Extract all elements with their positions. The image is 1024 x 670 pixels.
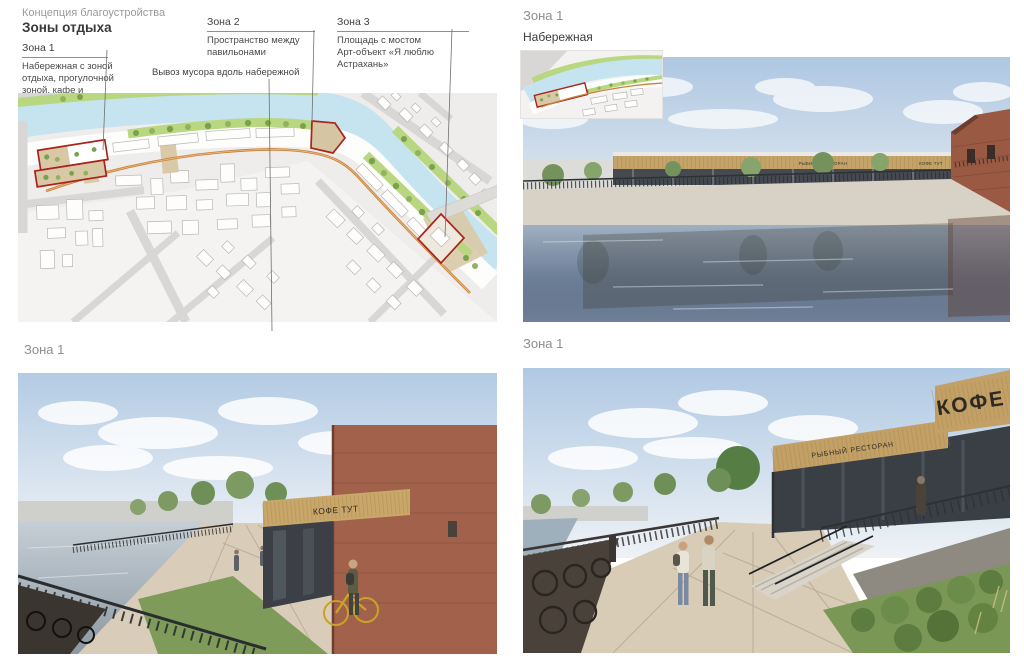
zone2-label: Зона 2 — [207, 16, 315, 32]
newel-post — [609, 536, 616, 562]
render-promenade-cafe: КОФЕ ТУТ — [18, 373, 497, 654]
backpack — [346, 573, 354, 585]
page-title: Зоны отдыха — [22, 20, 112, 35]
concept-kicker: Концепция благоустройства — [22, 7, 165, 19]
annotation-zone3: Зона 3 Площадь с мостом Арт-объект «Я лю… — [337, 16, 469, 71]
panel-top-right-subtitle: Набережная — [523, 30, 593, 44]
man — [702, 546, 715, 570]
zone3-desc-line2: Арт-объект «Я люблю Астрахань» — [337, 47, 469, 71]
render-promenade-stairs: РЫБНЫЙ РЕСТОРАН КОФЕ — [523, 368, 1010, 653]
trash-removal-note: Вывоз мусора вдоль набережной — [152, 67, 299, 78]
panel-bottom-left-zone-label: Зона 1 — [24, 342, 64, 357]
person-on-terrace — [916, 476, 926, 514]
presentation-page: Концепция благоустройства Зоны отдыха Зо… — [0, 0, 1024, 670]
site-plan-inset — [521, 51, 662, 118]
zone3-desc-line1: Площадь с мостом — [337, 35, 469, 47]
shoulder-bag — [673, 554, 680, 566]
site-plan-map — [18, 93, 497, 322]
panel-bottom-right-zone-label: Зона 1 — [523, 336, 563, 351]
water — [523, 215, 1010, 322]
zone2-desc: Пространство между павильонами — [207, 35, 315, 59]
wall-lamp — [448, 521, 457, 537]
zone1-label: Зона 1 — [22, 42, 108, 58]
panel-top-right-zone-label: Зона 1 — [523, 8, 563, 23]
coffee-here-sign-small: КОФЕ ТУТ — [919, 161, 943, 166]
annotation-zone2: Зона 2 Пространство между павильонами — [207, 16, 315, 59]
zone3-label: Зона 3 — [337, 16, 469, 32]
